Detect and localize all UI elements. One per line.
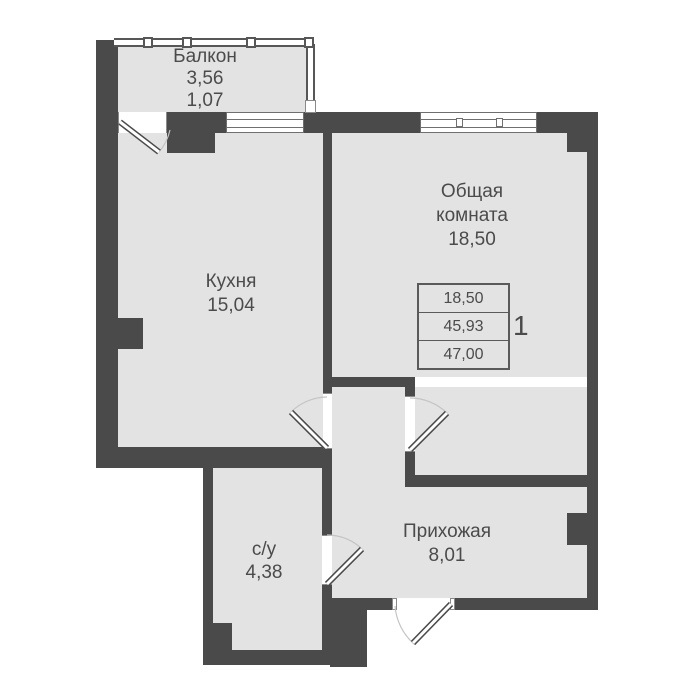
- bathroom-area: 4,38: [194, 561, 334, 584]
- railing-end-jamb: [305, 100, 316, 113]
- kitchen-name: Кухня: [156, 270, 306, 294]
- hallway-name: Прихожая: [372, 520, 522, 544]
- wall-right: [587, 112, 598, 610]
- wall-bathroom-notch: [213, 623, 232, 650]
- wall-corner-notch-top-right: [567, 133, 587, 152]
- balcony-area-full: 3,56: [130, 68, 280, 90]
- hallway-area: 8,01: [372, 544, 522, 568]
- hallway-neck-floor: [332, 387, 405, 487]
- living-window-mullion-1: [456, 118, 463, 127]
- wall-pillar-left: [118, 318, 143, 349]
- kitchen-area: 15,04: [156, 294, 306, 318]
- kitchen-window: [226, 112, 304, 133]
- kitchen-window-glazing: [227, 119, 303, 128]
- living-room-label: Общая комната 18,50: [397, 180, 547, 252]
- info-living-area: 18,50: [419, 285, 508, 312]
- railing-post-4: [304, 37, 314, 48]
- wall-kitchen-bottom: [96, 447, 332, 468]
- wall-bathroom-right-upper: [322, 468, 332, 535]
- wall-living-bottom: [405, 475, 587, 487]
- hallway-label: Прихожая 8,01: [372, 520, 522, 568]
- living-name-line1: Общая: [397, 180, 547, 204]
- balcony-label: Балкон 3,56 1,07: [130, 46, 280, 112]
- wall-kitchen-living-divider: [323, 133, 332, 383]
- kitchen-door-opening: [323, 393, 332, 449]
- wall-neck-top: [323, 377, 415, 387]
- apartment-info-table: 18,50 45,93 47,00: [417, 283, 510, 370]
- wall-pillar-top: [167, 133, 215, 153]
- balcony-area-reduced: 1,07: [130, 90, 280, 112]
- balcony-door-opening: [118, 112, 167, 133]
- entrance-jamb-left: [392, 598, 397, 610]
- wall-hall-bottom-right: [455, 598, 598, 610]
- entrance-door-opening: [392, 598, 455, 610]
- entrance-jamb-right: [450, 598, 455, 610]
- info-area-without-balcony: 45,93: [419, 312, 508, 340]
- info-total-area: 47,00: [419, 340, 508, 368]
- balcony-name: Балкон: [130, 46, 280, 68]
- living-room-floor-lower: [415, 387, 587, 475]
- living-name-line2: комната: [397, 204, 547, 228]
- bathroom-name: с/у: [194, 538, 334, 561]
- wall-entrance-block: [330, 598, 367, 667]
- entrance-door: [395, 604, 451, 644]
- wall-neck-right-upper: [405, 387, 415, 396]
- living-window-mullion-2: [496, 118, 503, 127]
- kitchen-label: Кухня 15,04: [156, 270, 306, 318]
- living-area: 18,50: [397, 228, 547, 252]
- wall-left: [96, 40, 118, 468]
- living-window: [420, 112, 537, 133]
- living-door-opening: [405, 396, 415, 452]
- wall-neck-left-lower: [323, 449, 332, 468]
- balcony-railing-right: [306, 44, 315, 102]
- apartment-number: 1: [513, 310, 529, 342]
- living-window-glazing: [421, 119, 536, 128]
- floor-plan: Балкон 3,56 1,07 Кухня 15,04 Общая комна…: [0, 0, 700, 700]
- bathroom-label: с/у 4,38: [194, 538, 334, 584]
- wall-pillar-hall-right: [567, 513, 587, 545]
